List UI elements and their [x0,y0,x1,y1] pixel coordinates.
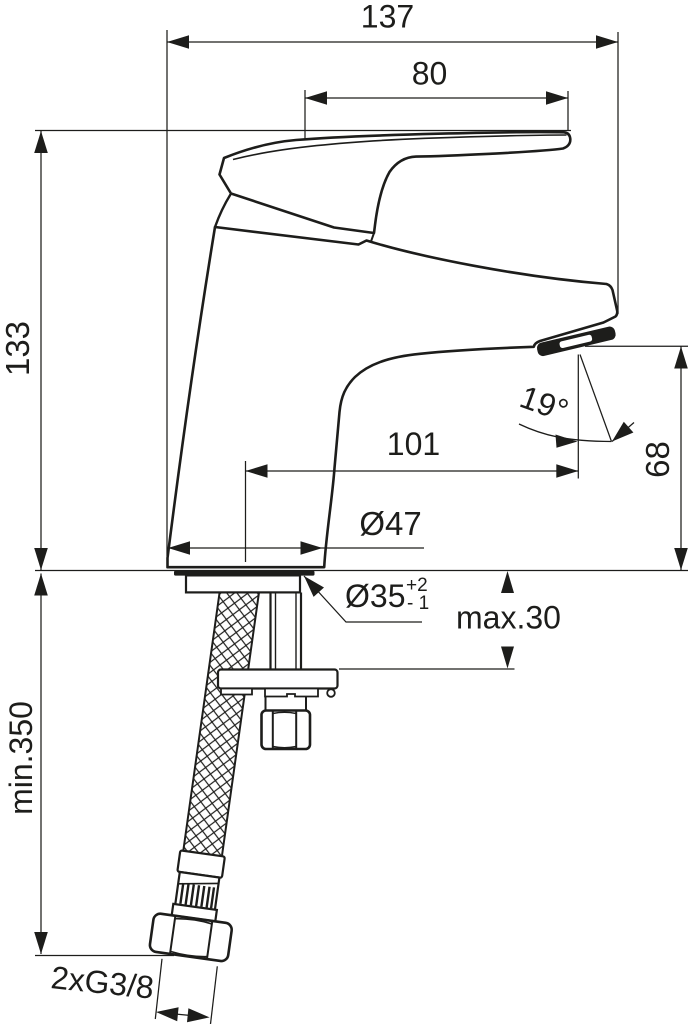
svg-text:- 1: - 1 [407,593,429,614]
svg-text:max.30: max.30 [456,600,561,636]
svg-text:133: 133 [0,321,36,376]
svg-text:80: 80 [412,56,448,92]
svg-text:Ø47: Ø47 [359,505,421,542]
svg-text:min.350: min.350 [3,701,39,815]
svg-text:137: 137 [361,0,414,35]
svg-text:101: 101 [387,426,440,462]
svg-text:68: 68 [639,441,676,478]
svg-text:Ø35: Ø35 [345,578,405,614]
